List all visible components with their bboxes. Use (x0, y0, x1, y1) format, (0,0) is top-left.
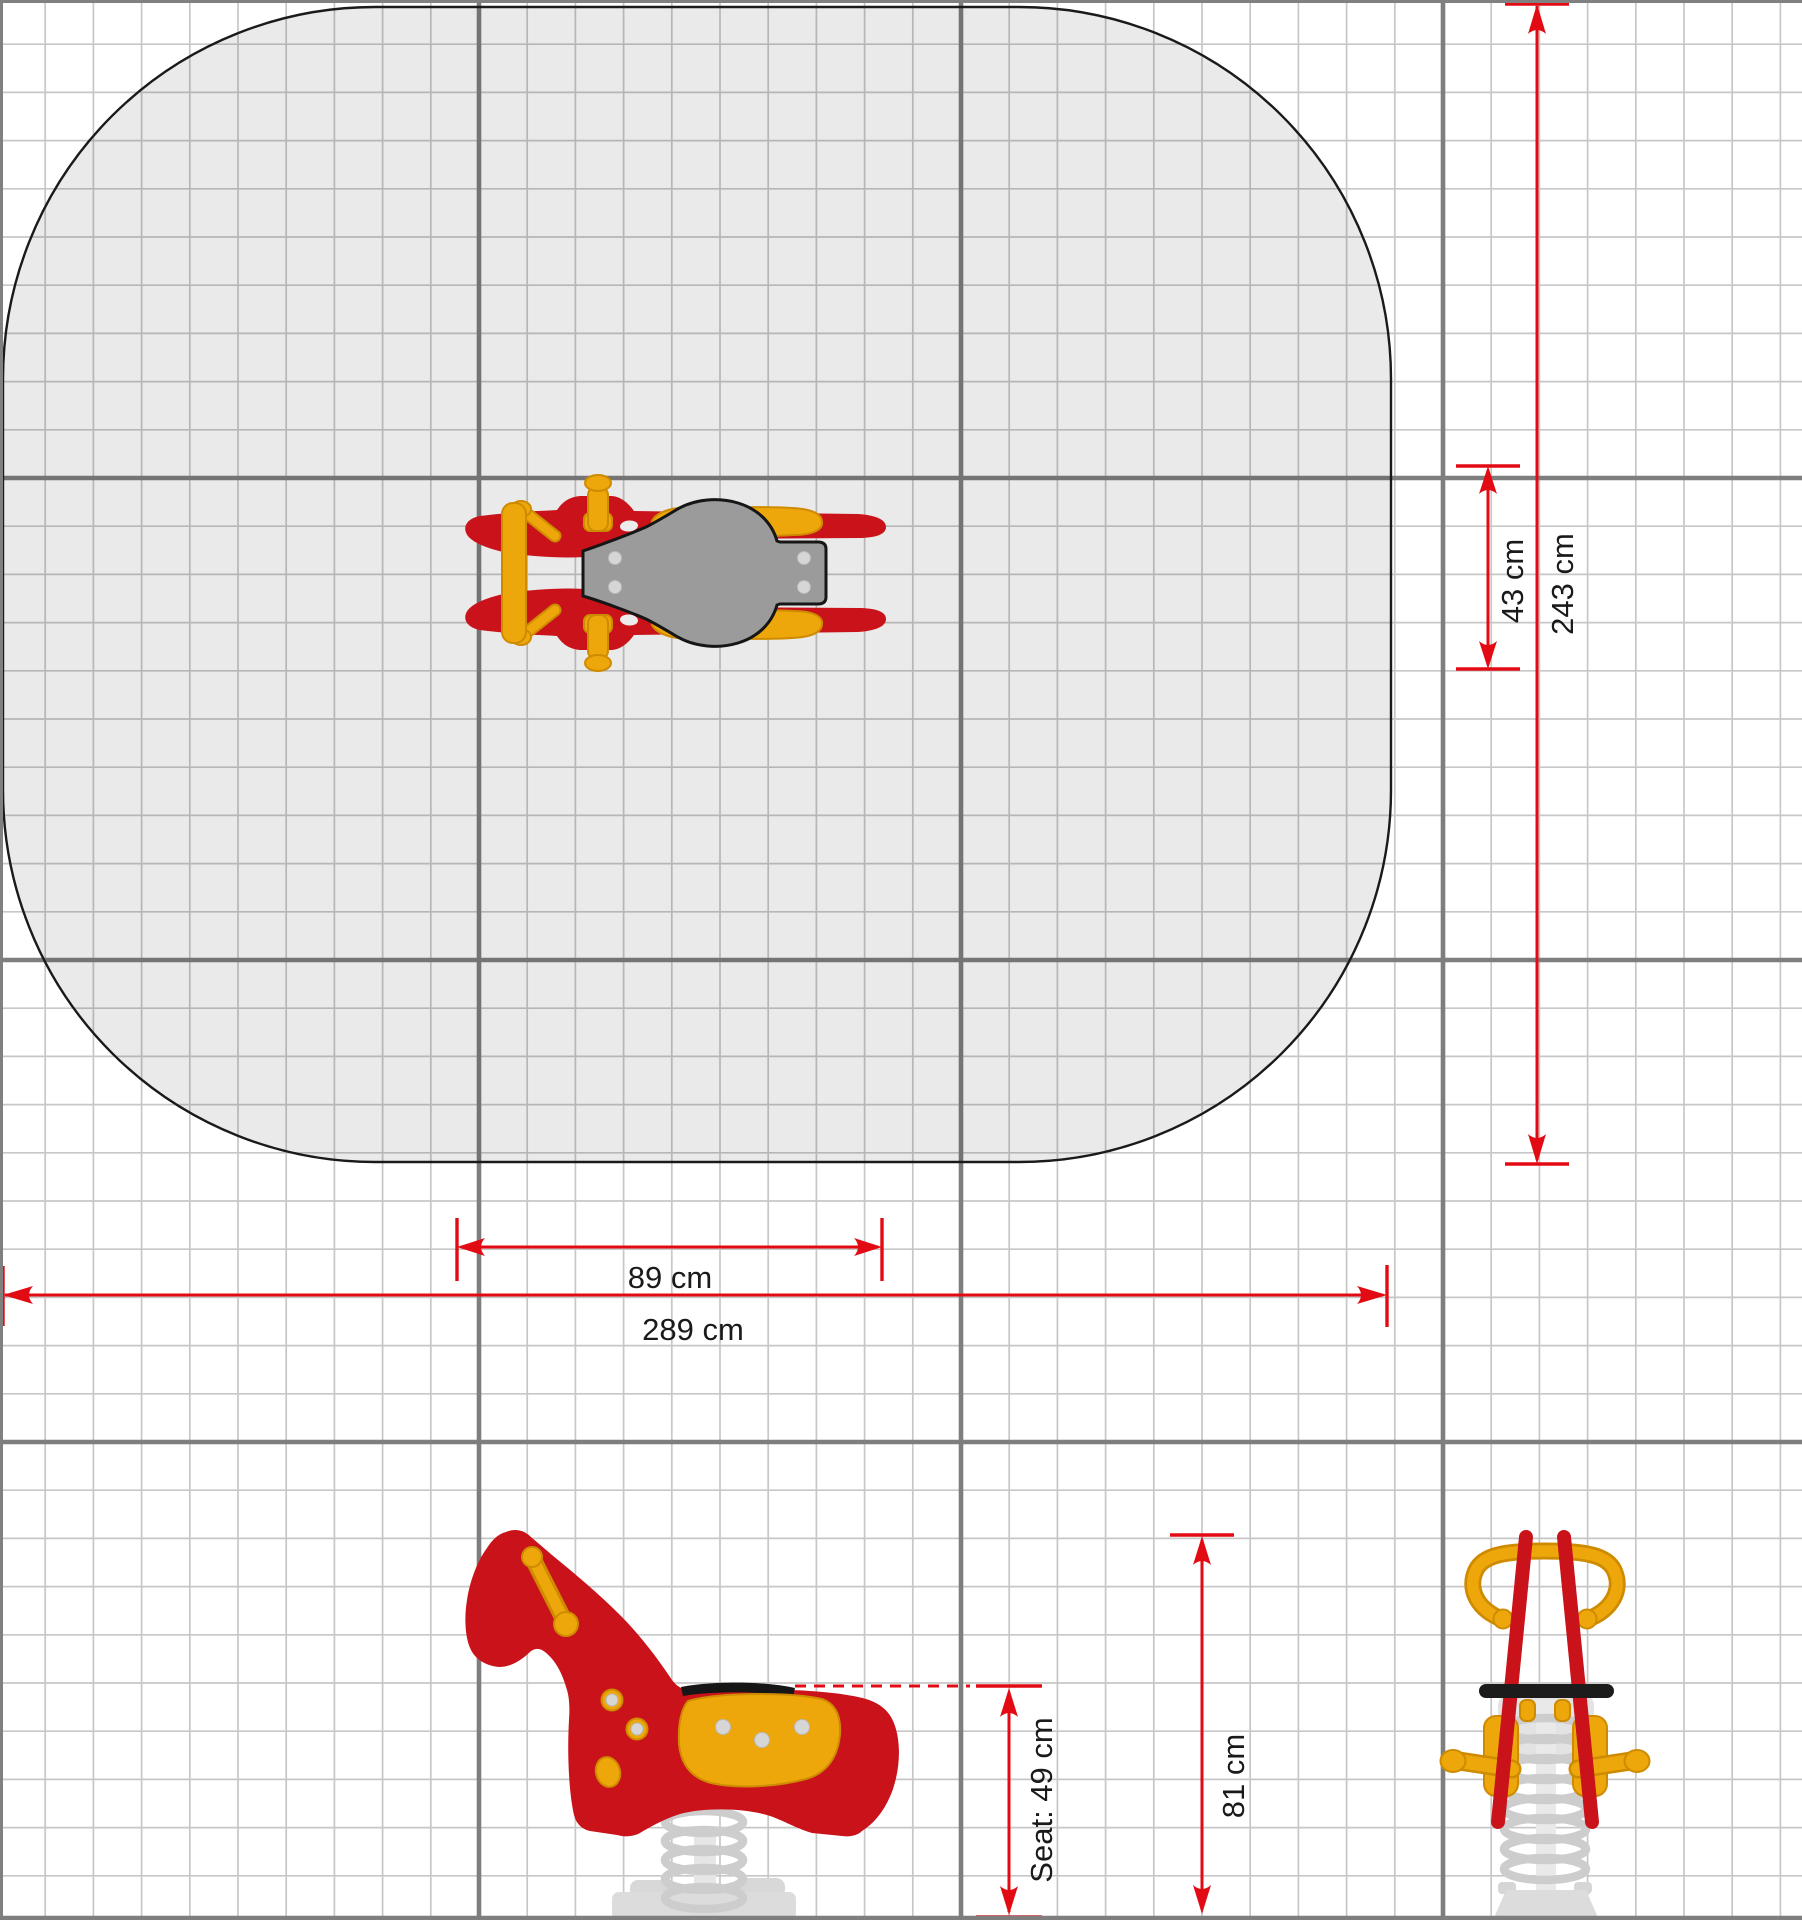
zone-width-label: 289 cm (642, 1312, 744, 1347)
total-height-label: 81 cm (1216, 1734, 1251, 1818)
device-width-label: 43 cm (1495, 539, 1530, 623)
top-view-handle-column (502, 503, 526, 643)
front-view-seat (1479, 1684, 1614, 1698)
device-length-label: 89 cm (628, 1260, 712, 1295)
mane-handle-icon (522, 1547, 542, 1567)
installation-diagram: 43 cm 243 cm 89 cm 289 cm (0, 0, 1802, 1920)
zone-depth-label: 243 cm (1545, 533, 1580, 635)
seat-height-label: Seat: 49 cm (1024, 1717, 1059, 1882)
